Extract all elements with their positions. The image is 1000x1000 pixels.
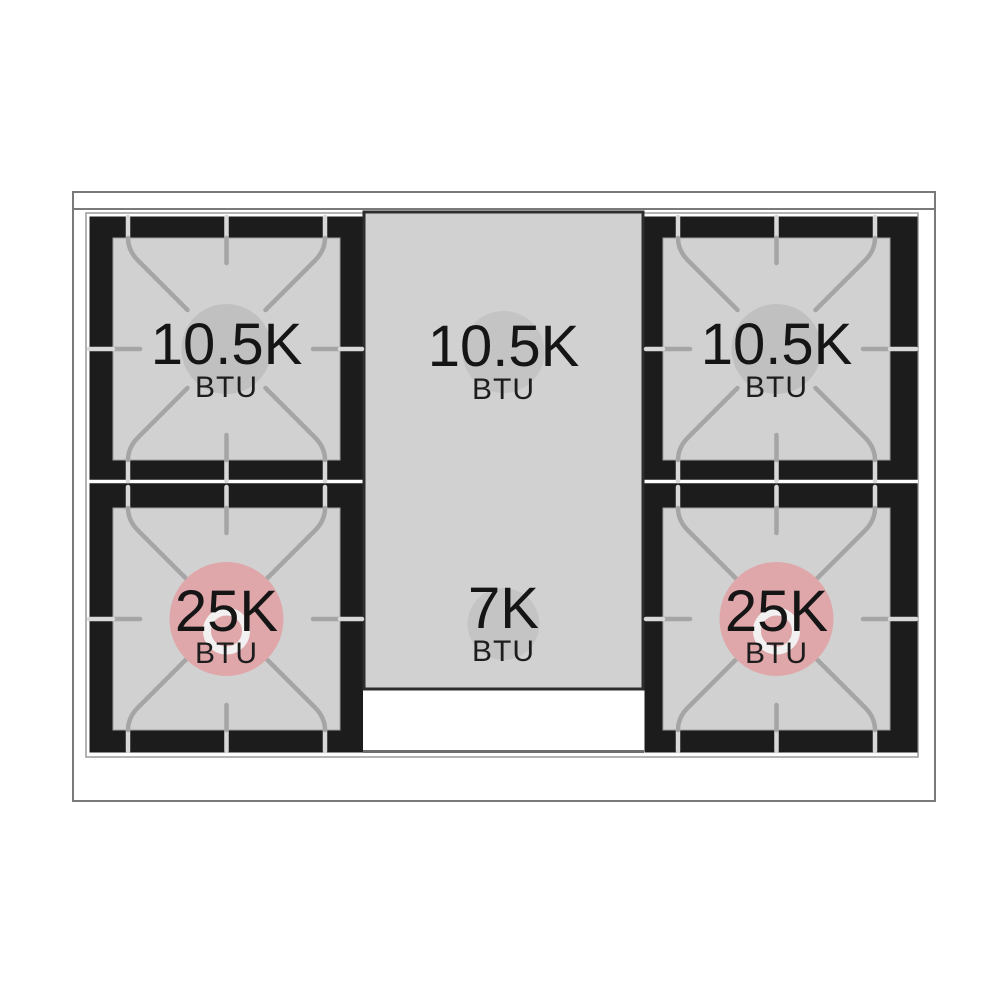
btu-unit-bottom-right: BTU: [745, 637, 808, 670]
burner-label-bottom-center: 7K BTU: [468, 576, 539, 668]
btu-value-bottom-center: 7K: [468, 576, 539, 641]
cooktop-diagram-page: 10.5K BTU 10.5K BTU 10.5K BTU 25K BTU 7K…: [0, 0, 1000, 1000]
btu-unit-bottom-left: BTU: [195, 637, 258, 670]
btu-value-top-left: 10.5K: [151, 312, 303, 377]
btu-value-top-right: 10.5K: [701, 312, 853, 377]
cooktop-burner-diagram: 10.5K BTU 10.5K BTU 10.5K BTU 25K BTU 7K…: [0, 0, 1000, 1000]
btu-value-bottom-right: 25K: [725, 579, 829, 644]
btu-value-top-center: 10.5K: [428, 314, 580, 379]
btu-unit-bottom-center: BTU: [472, 635, 535, 668]
btu-value-bottom-left: 25K: [175, 579, 279, 644]
btu-unit-top-left: BTU: [195, 371, 258, 404]
btu-unit-top-center: BTU: [472, 373, 535, 406]
btu-unit-top-right: BTU: [745, 371, 808, 404]
